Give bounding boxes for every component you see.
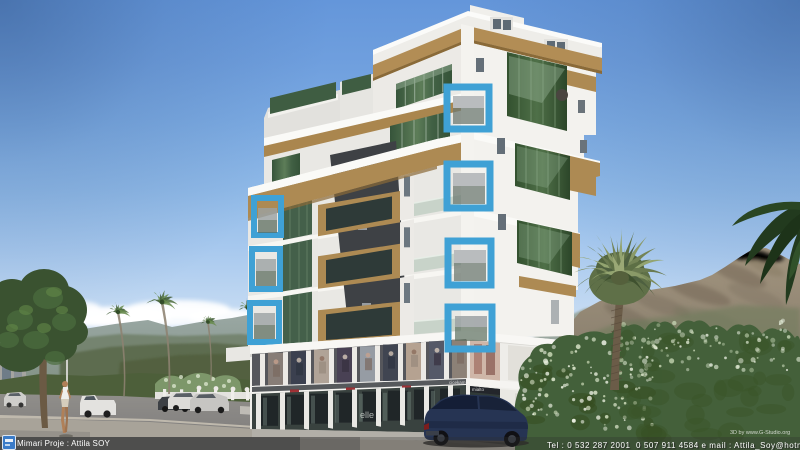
svg-text:elle: elle (360, 410, 374, 420)
svg-text:cicekam: cicekam (449, 380, 466, 385)
svg-text:mialto: mialto (472, 387, 485, 392)
